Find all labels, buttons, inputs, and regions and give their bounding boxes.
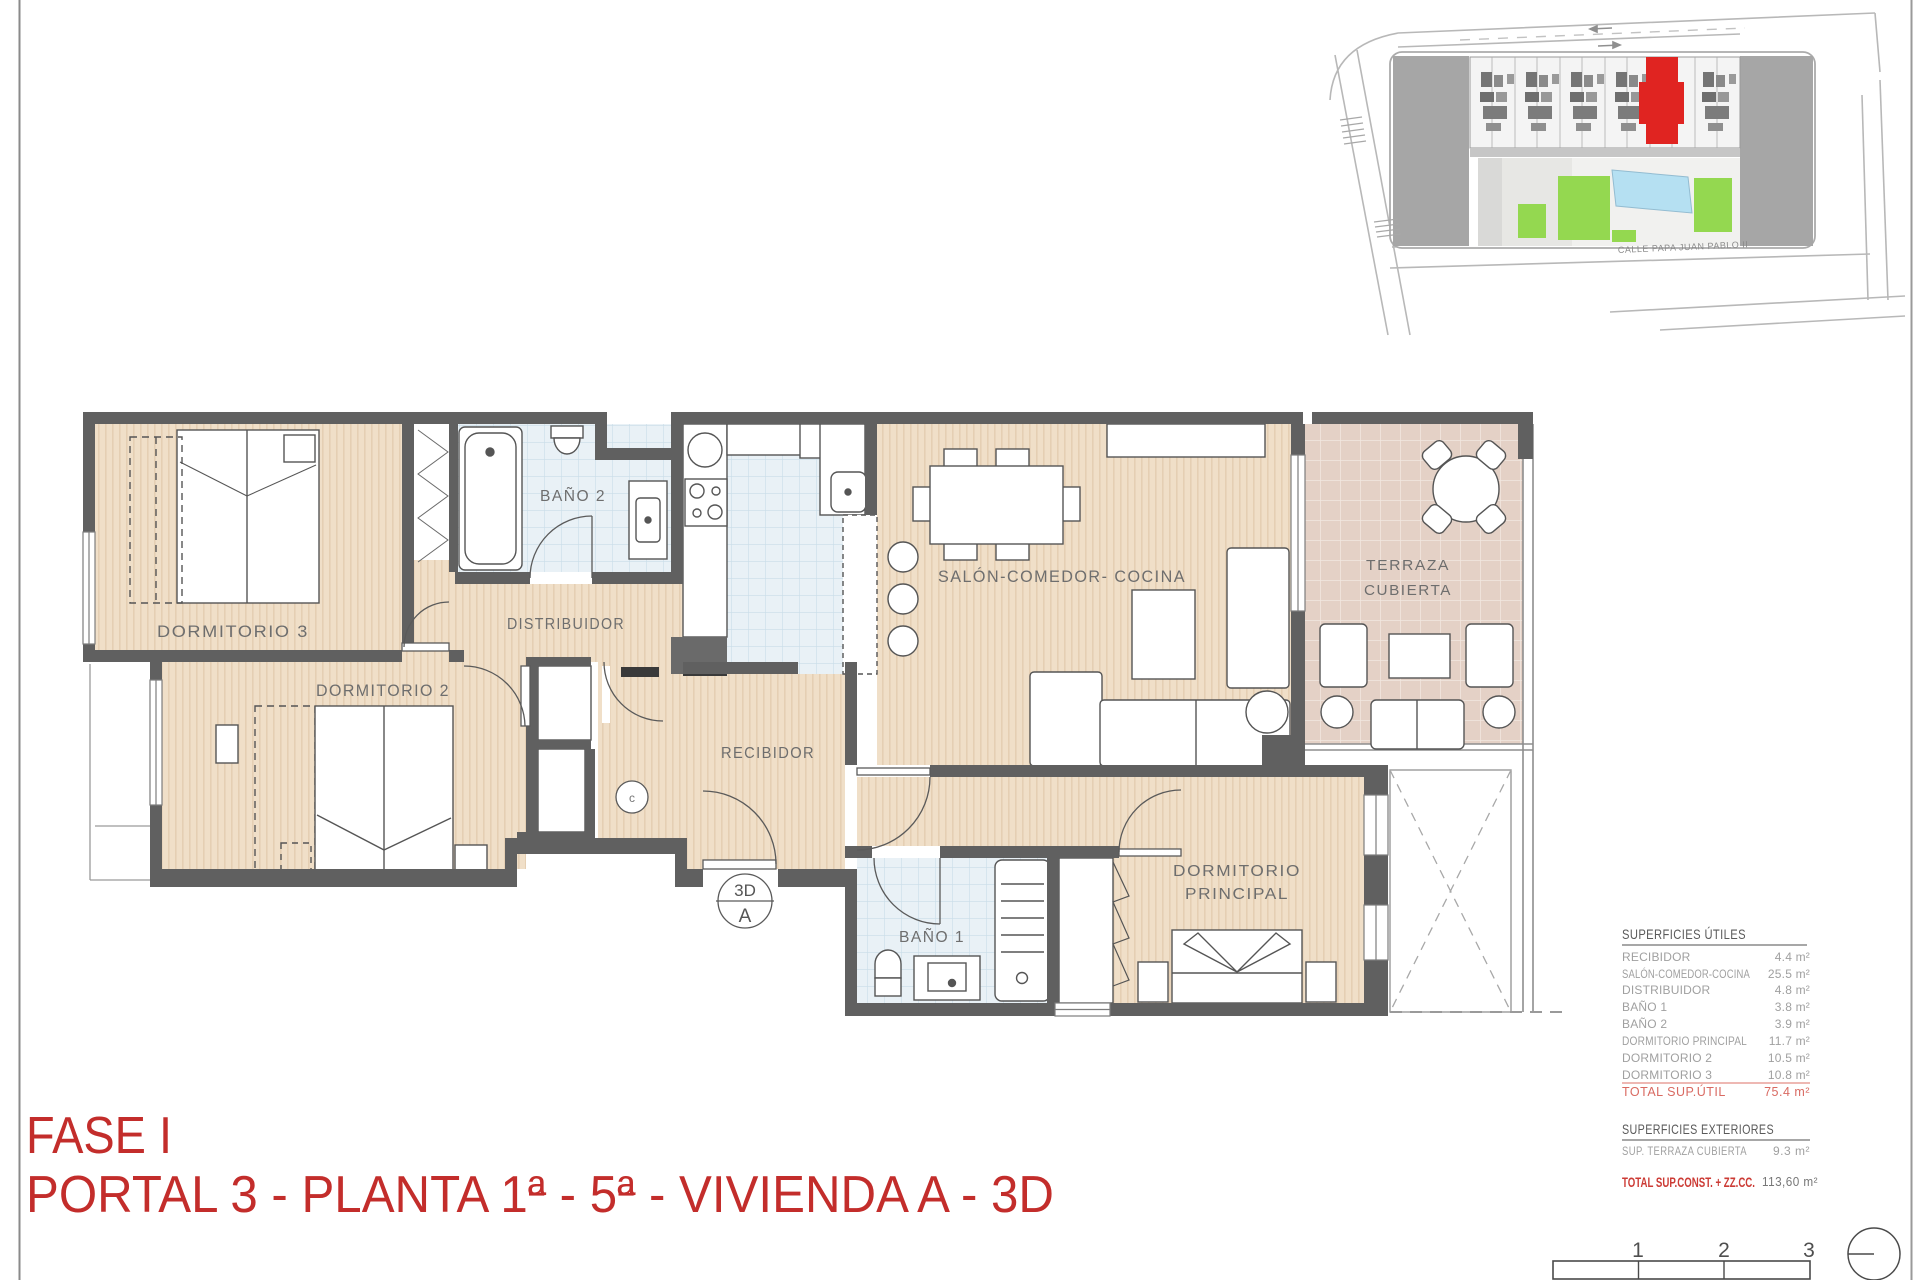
svg-text:TOTAL SUP.ÚTIL: TOTAL SUP.ÚTIL <box>1622 1084 1726 1099</box>
svg-text:3.9 m²: 3.9 m² <box>1775 1017 1810 1031</box>
svg-text:BAÑO 1: BAÑO 1 <box>899 926 965 946</box>
svg-text:DISTRIBUIDOR: DISTRIBUIDOR <box>1622 983 1711 997</box>
svg-text:DORMITORIO 3: DORMITORIO 3 <box>157 622 309 641</box>
svg-text:DORMITORIO 2: DORMITORIO 2 <box>316 681 450 700</box>
svg-text:11.7 m²: 11.7 m² <box>1769 1034 1810 1048</box>
svg-text:RECIBIDOR: RECIBIDOR <box>1622 950 1691 964</box>
svg-text:FASE I: FASE I <box>26 1107 172 1165</box>
svg-text:SUPERFICIES ÚTILES: SUPERFICIES ÚTILES <box>1622 926 1746 942</box>
svg-text:4.8 m²: 4.8 m² <box>1775 983 1810 997</box>
svg-text:DISTRIBUIDOR: DISTRIBUIDOR <box>507 616 625 633</box>
svg-text:A: A <box>739 906 752 927</box>
svg-text:SALÓN-COMEDOR- COCINA: SALÓN-COMEDOR- COCINA <box>938 567 1186 586</box>
svg-text:BAÑO 2: BAÑO 2 <box>540 485 606 505</box>
svg-text:4.4 m²: 4.4 m² <box>1775 950 1810 964</box>
svg-text:DORMITORIO 3: DORMITORIO 3 <box>1622 1068 1712 1082</box>
svg-text:SUP. TERRAZA CUBIERTA: SUP. TERRAZA CUBIERTA <box>1622 1144 1747 1158</box>
svg-text:DORMITORIO 2: DORMITORIO 2 <box>1622 1051 1712 1065</box>
svg-text:BAÑO 2: BAÑO 2 <box>1622 1017 1667 1031</box>
svg-text:BAÑO 1: BAÑO 1 <box>1622 1000 1667 1014</box>
svg-text:c: c <box>629 791 635 805</box>
svg-text:25.5 m²: 25.5 m² <box>1768 967 1810 981</box>
svg-text:DORMITORIO: DORMITORIO <box>1173 863 1301 880</box>
svg-text:3D: 3D <box>734 881 756 900</box>
svg-text:2: 2 <box>1718 1239 1730 1262</box>
svg-text:DORMITORIO PRINCIPAL: DORMITORIO PRINCIPAL <box>1622 1034 1747 1048</box>
svg-text:9.3 m²: 9.3 m² <box>1773 1144 1810 1158</box>
svg-text:TOTAL SUP.CONST. + ZZ.CC.: TOTAL SUP.CONST. + ZZ.CC. <box>1622 1175 1755 1190</box>
svg-text:113,60 m²: 113,60 m² <box>1762 1174 1818 1189</box>
svg-text:PRINCIPAL: PRINCIPAL <box>1185 886 1289 903</box>
svg-text:SUPERFICIES EXTERIORES: SUPERFICIES EXTERIORES <box>1622 1121 1774 1137</box>
svg-text:75.4 m²: 75.4 m² <box>1764 1085 1810 1099</box>
svg-text:3.8 m²: 3.8 m² <box>1775 1000 1810 1014</box>
svg-text:10.8 m²: 10.8 m² <box>1768 1068 1810 1082</box>
svg-text:TERRAZA: TERRAZA <box>1366 557 1450 574</box>
svg-text:SALÓN-COMEDOR-COCINA: SALÓN-COMEDOR-COCINA <box>1622 966 1750 981</box>
svg-text:10.5 m²: 10.5 m² <box>1768 1051 1810 1065</box>
svg-text:CUBIERTA: CUBIERTA <box>1364 582 1452 599</box>
svg-text:1: 1 <box>1632 1239 1644 1262</box>
svg-text:3: 3 <box>1803 1239 1815 1262</box>
svg-text:RECIBIDOR: RECIBIDOR <box>721 745 815 762</box>
